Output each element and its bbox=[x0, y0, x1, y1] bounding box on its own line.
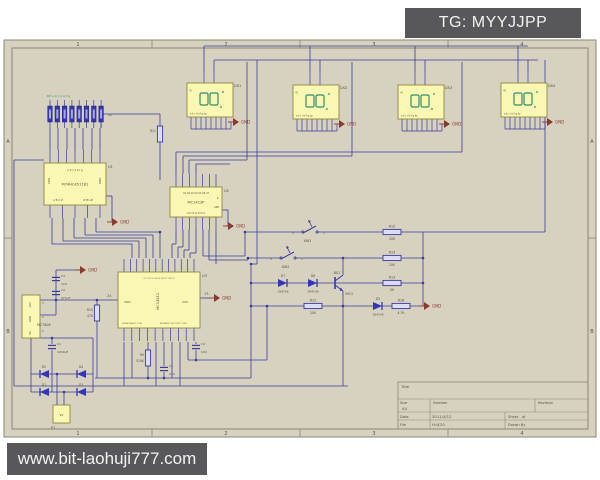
label: Date bbox=[400, 415, 409, 419]
diode-ref: D6 bbox=[311, 274, 315, 278]
network-resistor-body bbox=[56, 110, 58, 119]
diode-ref: D2 bbox=[42, 365, 46, 369]
junction-dot bbox=[51, 337, 54, 340]
decimal-point bbox=[431, 108, 433, 110]
network-resistor-body bbox=[86, 110, 88, 119]
junction-dot bbox=[422, 282, 425, 285]
ic-pin-label: LT BI LE bbox=[83, 198, 93, 202]
display-chevrons-icon: « bbox=[295, 90, 298, 96]
ic-part-number: M74HC4511B1 bbox=[62, 182, 89, 186]
ic-pin-label: RUN BUZ OSCI OSCO CLKO bbox=[160, 323, 187, 325]
resistor-ref: R15 bbox=[389, 225, 396, 229]
ic-pin-label: GND bbox=[214, 206, 219, 209]
ic-part-number: MC1413P bbox=[188, 200, 206, 204]
decimal-point bbox=[536, 91, 538, 93]
display-pin-names: a b c d e f g dp bbox=[504, 113, 521, 116]
junction-dot bbox=[55, 299, 58, 302]
resistor-value: 20K bbox=[389, 237, 396, 241]
label: Drawn By bbox=[508, 423, 526, 427]
gnd-text: GND bbox=[120, 220, 129, 225]
junction-dot bbox=[159, 231, 162, 234]
watermark-top-right-text: TG: MYYJJPP bbox=[439, 14, 548, 32]
network-resistor-body bbox=[64, 110, 66, 119]
resistor-value: 20K bbox=[389, 263, 396, 267]
ic-pin-label: GND bbox=[98, 178, 102, 184]
resistor-ref: R14 bbox=[389, 251, 396, 255]
junction-dot bbox=[195, 359, 198, 362]
diode-ref: D3 bbox=[79, 383, 83, 387]
sheet-file: H:\K20 bbox=[432, 422, 445, 427]
junction-dot bbox=[96, 299, 99, 302]
zone-label: A bbox=[6, 139, 10, 145]
schematic-canvas: 11223344AABBTitleSizeA4NumberRevisionDat… bbox=[0, 0, 600, 480]
ic-ref: U1 bbox=[108, 165, 113, 169]
cap-ref: C5 bbox=[169, 364, 173, 368]
resistor-ref: R12 bbox=[310, 299, 317, 303]
resistor-body bbox=[304, 303, 322, 308]
display-ref: DS2 bbox=[340, 86, 347, 90]
resistor-ref: R16 bbox=[398, 299, 405, 303]
gnd-text: GND bbox=[88, 268, 97, 273]
sheet-date: 2011/4/12 bbox=[432, 414, 452, 419]
diode-ref: D7 bbox=[281, 274, 285, 278]
decimal-point bbox=[328, 93, 330, 95]
sheet-size: A4 bbox=[402, 406, 408, 411]
zone-label: 1 bbox=[76, 42, 79, 48]
resistor-value: 4.7K bbox=[398, 311, 406, 315]
decimal-point bbox=[220, 106, 222, 108]
ic-pin-label: A B C D bbox=[53, 198, 63, 202]
switch-pin-number: 3 bbox=[292, 231, 294, 235]
ic-pin-label: a b c d e f g bbox=[67, 168, 83, 172]
resistor-body bbox=[383, 280, 401, 285]
network-resistor-body bbox=[49, 110, 51, 119]
screenshot-root: 11223344AABBTitleSizeA4NumberRevisionDat… bbox=[0, 0, 600, 480]
junction-dot bbox=[250, 263, 253, 266]
display-pin-names: a b c d e f g dp bbox=[401, 115, 418, 118]
switch-pin-number: 3 bbox=[270, 257, 272, 261]
junction-dot bbox=[422, 257, 425, 260]
switch-ref: KW2 bbox=[282, 265, 289, 269]
resistor-body bbox=[145, 350, 150, 366]
decimal-point bbox=[433, 93, 435, 95]
resistor-body bbox=[383, 255, 401, 260]
regulator-pin-label: GND bbox=[28, 316, 32, 322]
junction-dot bbox=[342, 257, 345, 260]
cap-value: 2200uF bbox=[57, 350, 69, 354]
ic-pin-label: O1 O2 O3 O4 O5 O6 O7 bbox=[183, 192, 210, 195]
zone-label: 4 bbox=[520, 431, 523, 437]
zone-label: 2 bbox=[224, 431, 227, 437]
switch-pin-number: 1 bbox=[323, 231, 325, 235]
junction-dot bbox=[250, 305, 253, 308]
network-resistor-body bbox=[78, 110, 80, 119]
watermark-bottom-left: www.bit-laohuji777.com bbox=[7, 443, 207, 475]
display-ref: DS1 bbox=[234, 84, 241, 88]
display-chevrons-icon: « bbox=[503, 88, 506, 94]
network-resistor-body bbox=[100, 110, 102, 119]
network-resistor-body bbox=[93, 110, 95, 119]
transistor-ref: BG1 bbox=[334, 271, 341, 275]
cap-ref: C2 bbox=[61, 288, 65, 292]
decimal-point bbox=[326, 108, 328, 110]
junction-dot bbox=[247, 257, 250, 260]
display-ref: DS4 bbox=[548, 84, 556, 88]
junction-dot bbox=[342, 305, 345, 308]
regulator-pin-number: 1 bbox=[42, 329, 44, 333]
display-chevrons-icon: « bbox=[189, 88, 192, 94]
resistor-value: 20K bbox=[310, 311, 317, 315]
gnd-text: GND bbox=[432, 304, 441, 309]
ic-pin-label: O1 O2 O3 O4 O5 O6 O7 O8 O9 bbox=[144, 278, 175, 280]
gnd-text: GND bbox=[241, 120, 250, 125]
regulator-pin-number: 2 bbox=[42, 315, 44, 319]
gnd-text: GND bbox=[236, 224, 245, 229]
junction-dot bbox=[250, 282, 253, 285]
resistor-value: 510K bbox=[136, 359, 145, 363]
gnd-text: GND bbox=[222, 296, 231, 301]
label: Number bbox=[433, 401, 448, 405]
diode-value: 1N4148 bbox=[278, 290, 289, 294]
gnd-text: GND bbox=[452, 122, 461, 127]
junction-dot bbox=[266, 305, 269, 308]
diode-ref: D4 bbox=[79, 365, 83, 369]
resistor-body bbox=[94, 305, 99, 321]
ic-part-number: MC14511 bbox=[156, 293, 160, 310]
regulator-pin-label: +6V bbox=[28, 302, 32, 308]
gnd-text: GND bbox=[347, 122, 356, 127]
diode-value: 1N4148 bbox=[308, 290, 319, 294]
zone-label: 3 bbox=[372, 431, 375, 437]
zone-label: 3 bbox=[372, 42, 375, 48]
display-ref: DS3 bbox=[445, 86, 452, 90]
junction-dot bbox=[56, 373, 59, 376]
wire-label: 13 bbox=[204, 292, 208, 296]
diode-value: 1N4148 bbox=[373, 313, 384, 317]
ic-pin-label: VDDA VSSA TL CLKI bbox=[122, 322, 142, 325]
ic-ref: U3 bbox=[202, 274, 207, 278]
regulator-pin-number: 3 bbox=[42, 301, 44, 305]
display-chevrons-icon: « bbox=[400, 90, 403, 96]
resistor-body bbox=[392, 303, 410, 308]
resnet-top-label: DP a b c d e f g bbox=[47, 94, 70, 98]
watermark-top-right: TG: MYYJJPP bbox=[405, 8, 581, 38]
transistor-value: 9013 bbox=[345, 292, 353, 296]
zone-label: B bbox=[590, 329, 594, 335]
ic-ref: U2 bbox=[224, 189, 229, 193]
switch-ref: KW1 bbox=[304, 239, 311, 243]
cap-ref: C1 bbox=[57, 342, 61, 346]
resistor-ref: R11 bbox=[150, 129, 156, 133]
ic-pin-label: I1 I2 I3 I4 I5 I6 I7 bbox=[187, 212, 206, 215]
zone-label: 2 bbox=[224, 42, 227, 48]
zone-label: 4 bbox=[520, 42, 523, 48]
gnd-text: GND bbox=[555, 120, 564, 125]
cap-ref: C4 bbox=[201, 342, 205, 346]
label: Size bbox=[400, 401, 408, 405]
resistor-ref: R9 bbox=[140, 353, 144, 357]
switch-pin-number: 1 bbox=[301, 257, 303, 261]
junction-dot bbox=[244, 231, 247, 234]
resistor-ref: R10 bbox=[87, 308, 93, 312]
ic-pin-label: VSS bbox=[182, 300, 188, 304]
wire-label: 24 bbox=[107, 294, 112, 298]
resistor-ref: R13 bbox=[389, 276, 396, 280]
regulator-pin-label: Vin bbox=[28, 331, 32, 335]
cap-value: 104 bbox=[201, 350, 207, 354]
resistor-value: 47K bbox=[87, 314, 94, 318]
decimal-point bbox=[534, 106, 536, 108]
regulator-part-number: MC7806 bbox=[37, 323, 51, 327]
zone-label: 1 bbox=[76, 431, 79, 437]
resistor-body bbox=[157, 126, 162, 142]
label: Revision bbox=[538, 401, 553, 405]
decimal-point bbox=[222, 91, 224, 93]
display-pin-names: a b c d e f g dp bbox=[190, 113, 207, 116]
cap-ref: C3 bbox=[61, 274, 65, 278]
ic-pin-label: VDD bbox=[124, 300, 131, 304]
ic-pin-label: VDD bbox=[47, 178, 51, 184]
zone-label: A bbox=[590, 139, 594, 145]
connector-ref: P1 bbox=[51, 426, 55, 430]
network-resistor-body bbox=[71, 110, 73, 119]
cap-value: 104 bbox=[169, 372, 175, 376]
label: Sheet bbox=[508, 415, 519, 419]
diode-ref: D1 bbox=[42, 383, 46, 387]
resistor-body bbox=[383, 229, 401, 234]
cap-value: 470uF bbox=[61, 296, 71, 300]
display-pin-names: a b c d e f g dp bbox=[296, 115, 313, 118]
title-label: Title bbox=[400, 384, 410, 389]
junction-dot bbox=[163, 377, 166, 380]
junction-dot bbox=[147, 377, 150, 380]
junction-dot bbox=[63, 391, 66, 394]
diode-ref: D5 bbox=[376, 297, 380, 301]
zone-label: B bbox=[6, 329, 10, 335]
watermark-bottom-left-text: www.bit-laohuji777.com bbox=[18, 449, 197, 469]
label: File bbox=[400, 423, 407, 427]
cap-value: 104 bbox=[61, 282, 67, 286]
